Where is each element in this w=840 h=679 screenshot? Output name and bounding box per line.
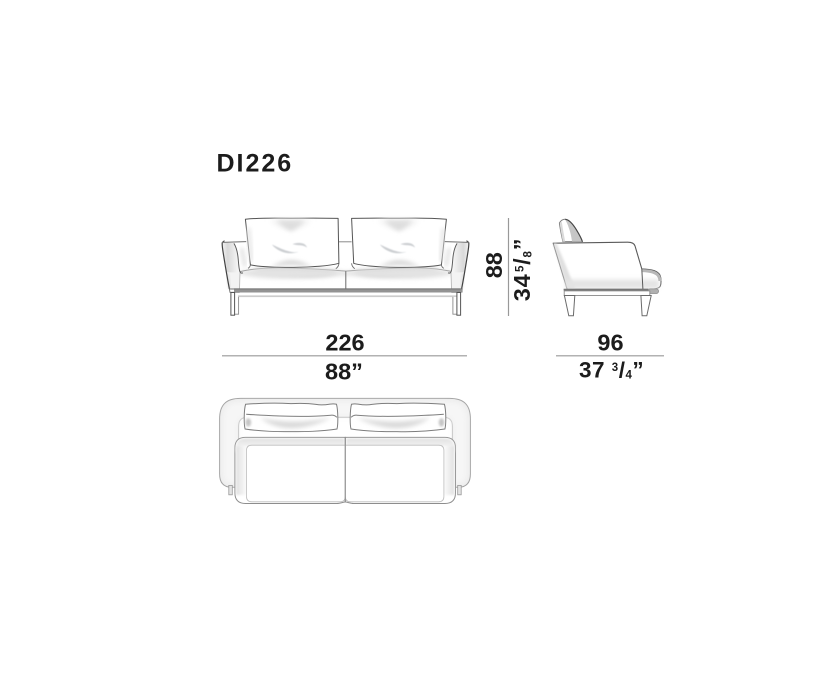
svg-text:96: 96 xyxy=(597,330,623,356)
svg-text:88: 88 xyxy=(481,252,507,278)
svg-text:345/8”: 345/8” xyxy=(509,238,535,302)
svg-text:88”: 88” xyxy=(325,359,363,385)
svg-text:37 3/4”: 37 3/4” xyxy=(579,357,644,382)
svg-text:226: 226 xyxy=(325,329,364,355)
svg-text:DI226: DI226 xyxy=(217,150,294,178)
